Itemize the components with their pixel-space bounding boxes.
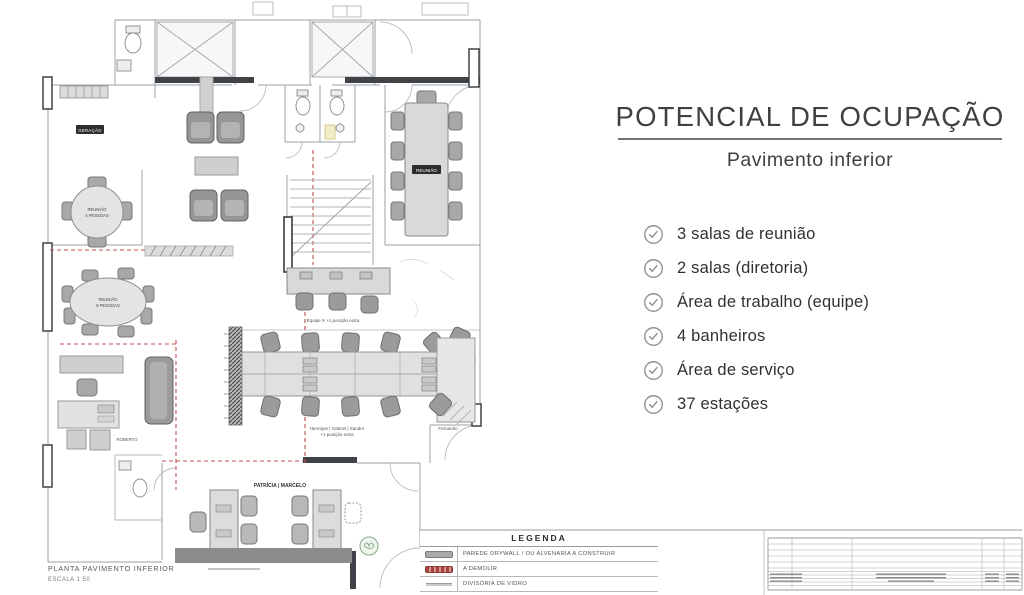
page-title: POTENCIAL DE OCUPAÇÃO [598,100,1022,134]
office-label: ROBERTO [116,437,138,442]
legend-title: LEGENDA [420,531,658,547]
floor-plan-svg: GERAÇÃO REUNIÃO 4 PESSOAS [0,0,1024,595]
meeting-table-label: REUNIÃO [416,167,437,173]
office-roberto: ROBERTO [58,356,173,450]
legend-row-label: DIVISÓRIA DE VIDRO [458,581,527,587]
checklist-item-label: 37 estações [677,395,768,414]
checklist-item-label: 2 salas (diretoria) [677,259,808,278]
retail-bottom-strip [175,548,352,563]
armchair [217,112,244,143]
meeting-room-4: REUNIÃO 4 PESSOAS [62,177,132,247]
armchair [187,112,214,143]
meeting4-label2: 4 PESSOAS [85,213,109,218]
hatch-strip [145,246,233,256]
generator-label: GERAÇÃO [76,125,104,134]
legend-row: A DEMOLIR [420,562,658,577]
armchair [190,190,217,221]
checklist-item-label: Área de trabalho (equipe) [677,293,869,312]
oval-table [70,278,146,326]
legend-row-label: A DEMOLIR [458,566,497,572]
desk-owner-note: Fernando [438,426,458,431]
retail-label: PATRÍCIA | MARCELO [254,481,306,489]
meeting-table-long: REUNIÃO [391,91,462,236]
staircase [284,180,371,272]
title-underline [618,138,1002,140]
checklist-item-label: 4 banheiros [677,327,765,346]
slide: GERAÇÃO REUNIÃO 4 PESSOAS [0,0,1024,595]
legend-box: LEGENDA PAREDE DRYWALL / OU ALVENARIA A … [420,531,658,592]
check-circle-icon [643,360,664,381]
check-circle-icon [643,394,664,415]
legend-swatch-glass [420,577,458,591]
plan-caption-title: PLANTA PAVIMENTO INFERIOR [48,564,175,573]
round-table [71,186,123,238]
meeting8-label2: 8 PESSOAS [96,303,120,308]
page-subtitle: Pavimento inferior [598,149,1022,172]
sketch-marks [400,259,454,318]
legend-row: DIVISÓRIA DE VIDRO [420,577,658,592]
checklist-item: 2 salas (diretoria) [643,251,869,285]
meeting8-label: REUNIÃO [98,297,118,302]
legend-row-label: PAREDE DRYWALL / OU ALVENARIA A CONSTRUI… [458,551,615,557]
checklist-item: 3 salas de reunião [643,217,869,251]
legend-row: PAREDE DRYWALL / OU ALVENARIA A CONSTRUI… [420,547,658,562]
checklist-item: 37 estações [643,387,869,421]
legend-swatch-wall [420,547,458,561]
checklist-item-label: 3 salas de reunião [677,225,815,244]
team-note: Equipe X +1 posição extra [307,318,360,323]
legend-swatch-demolish [420,562,458,576]
hot-desk-counter [287,268,390,313]
check-circle-icon [643,224,664,245]
check-circle-icon [643,292,664,313]
shafts [157,2,468,77]
coffee-table [195,157,238,175]
check-circle-icon [643,326,664,347]
lounge [187,112,248,221]
check-circle-icon [643,258,664,279]
checklist-item: Área de trabalho (equipe) [643,285,869,319]
checklist-item: 4 banheiros [643,319,869,353]
workstation-cluster: Henrique | Gabriel | Sandro +1 posição e… [224,326,475,437]
wc-bottomleft [119,461,147,497]
desks-note1: Henrique | Gabriel | Sandro [310,426,365,431]
checklist-item: Área de serviço [643,353,869,387]
generator-label-text: GERAÇÃO [78,128,102,133]
retail-room: PATRÍCIA | MARCELO [175,481,378,570]
wc-topleft [117,26,141,71]
plan-caption-scale: ESCALA 1:50 [48,577,90,583]
meeting-room-8: REUNIÃO 8 PESSOAS [62,268,154,337]
armchair [221,190,248,221]
checklist-item-label: Área de serviço [677,361,795,380]
desks-note2: +1 posição extra [320,432,354,437]
occupancy-checklist: 3 salas de reunião 2 salas (diretoria) Á… [643,217,869,421]
meeting4-label: REUNIÃO [87,207,107,212]
occupancy-panel: POTENCIAL DE OCUPAÇÃO Pavimento inferior [598,100,1022,172]
